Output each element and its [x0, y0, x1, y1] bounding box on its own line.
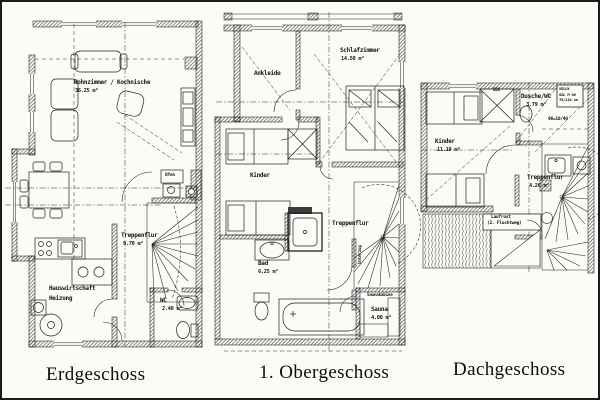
room-area-og-sauna: 4.00 m² — [371, 316, 391, 321]
eg-wall-unit — [181, 88, 195, 146]
dg-laufrost-area — [423, 214, 541, 268]
room-label-og-bad: Bad — [258, 261, 268, 267]
eg-sofa-group — [51, 51, 145, 141]
annotation-og-unterzug: Unterzug — [358, 245, 362, 264]
erdgeschoss-drawing — [5, 21, 202, 348]
room-label-og-sauna: Sauna — [371, 307, 388, 313]
room-label-dg-dusche-wc: Dusche/WC — [521, 94, 551, 100]
annotation-eg-ofen: Ofen — [165, 174, 175, 179]
eg-dining-set — [20, 162, 69, 218]
dg-wardrobe — [480, 89, 514, 122]
room-label-dg-kinder: Kinder — [435, 139, 455, 145]
og-kids-beds — [226, 129, 290, 235]
annotation-dg-laufrost-line1: Laufrost — [491, 216, 511, 221]
room-label-og-treppenflur: Treppenflur — [332, 221, 368, 227]
room-label-dg-treppenflur: Treppenflur — [527, 175, 563, 181]
room-area-og-bad: 6.25 m² — [258, 270, 278, 275]
floorplan-sheet: Wohnzimmer / Kochnische 36.25 m² Treppen… — [0, 0, 600, 400]
og-wardrobe — [288, 129, 317, 159]
room-label-eg-hauswirtschaft: Hauswirtschaft — [49, 286, 95, 292]
room-area-dg-treppenflur: 4.26 m² — [529, 184, 549, 189]
room-label-eg-heizung: Heizung — [49, 296, 72, 302]
annotation-dg-laufrost-line2: (2. Fluchtweg) — [487, 222, 522, 227]
annotation-dg-ebs: EBS — [493, 88, 500, 92]
annotation-dg-velux-line2: GGL M 06 — [559, 93, 576, 97]
annotation-dg-velux-line3: 78/118 cm — [559, 98, 578, 102]
og-shower — [288, 207, 322, 251]
room-area-eg-wohnzimmer: 36.25 m² — [75, 89, 98, 94]
caption-erdgeschoss: Erdgeschoss — [46, 364, 145, 386]
eg-utility-fixtures — [31, 300, 62, 336]
room-label-og-ankleide: Ankleide — [254, 71, 281, 77]
dachgeschoss-drawing — [421, 82, 600, 273]
obergeschoss-drawing — [215, 12, 421, 352]
room-label-og-schlafzimmer: Schlafzimmer — [340, 48, 380, 54]
room-label-eg-wohnzimmer: Wohnzimmer / Kochnische — [74, 80, 150, 86]
eg-door-arcs — [94, 172, 184, 341]
room-area-dg-kinder: 11.19 m² — [437, 148, 460, 153]
room-label-og-kinder: Kinder — [250, 173, 270, 179]
annotation-dg-velux-line1: VELUX — [559, 87, 569, 91]
og-balcony-edge — [224, 13, 402, 20]
dg-windows — [450, 83, 476, 90]
room-label-eg-wc: WC — [160, 298, 167, 304]
eg-wc-fixtures — [177, 296, 199, 339]
caption-dachgeschoss: Dachgeschoss — [453, 359, 565, 381]
annotation-og-saunakabine: Saunakabine — [367, 293, 393, 297]
eg-kitchen — [35, 238, 112, 285]
room-label-eg-treppenflur: Treppenflur — [121, 233, 157, 239]
og-bath-fixtures — [254, 240, 364, 335]
room-area-dg-dusche-wc: 3.79 m² — [526, 103, 546, 108]
annotation-dg-rafter-dim: 96=10/40 — [548, 118, 568, 123]
caption-obergeschoss: 1. Obergeschoss — [259, 362, 389, 384]
og-stair-spiral — [354, 182, 421, 289]
og-double-bed — [346, 86, 404, 150]
room-area-og-schlafzimmer: 14.50 m² — [341, 57, 364, 62]
room-area-eg-wc: 2.40 m² — [162, 307, 182, 312]
room-area-eg-treppenflur: 9.70 m² — [123, 242, 143, 247]
floorplan-drawing — [2, 2, 600, 400]
eg-stair — [147, 203, 198, 302]
